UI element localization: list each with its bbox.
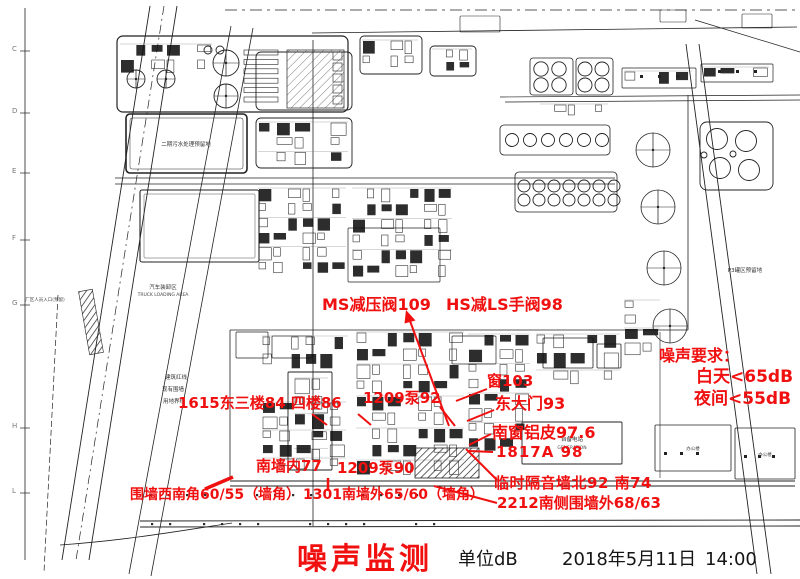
label-pump-92: 1209泵92 (363, 391, 441, 406)
gate-note-label: 厂区人员入口(预留) (25, 296, 65, 303)
requirements-title: 噪声要求： (659, 348, 739, 364)
requirement-day: 白天<65dB (696, 369, 793, 386)
p3-area-label: P3罐区预留地 (728, 266, 763, 274)
label-1817a: 1817A 98 (496, 445, 583, 460)
label-sw-corner: 围墙西南角60/55（墙角） (130, 488, 300, 502)
grid-letter: E (12, 167, 16, 175)
label-ms-valve: MS减压阀109 (322, 297, 431, 313)
grid-letter: L (12, 487, 16, 495)
grid-letter: D (12, 107, 17, 115)
date-label: 2018年5月11日 (562, 551, 696, 569)
office-label: 办公楼 (686, 445, 700, 452)
requirement-night: 夜间<55dB (694, 391, 791, 408)
grid-letter: F (12, 234, 16, 242)
label-pump-90: 1209泵90 (337, 461, 415, 476)
label-south-wall-outer: 1301南墙外65/60（墙角） (303, 488, 484, 502)
noise-monitoring-site-plan: 汽车装卸区 TRUCK LOADING AREA 厂区人员入口(预留) 建筑红线… (0, 0, 800, 579)
label-south-window: 南窗铝皮97.6 (492, 425, 595, 441)
pond-label: 二期污水处理预留地 (161, 140, 211, 148)
truck-area-label-en: TRUCK LOADING AREA (137, 292, 190, 298)
label-hs-valve: HS减LS手阀98 (446, 297, 563, 313)
office-label: 办公楼 (758, 451, 772, 458)
truck-area-label: 汽车装卸区 (149, 283, 177, 291)
label-window-103: 窗103 (487, 374, 533, 389)
label-temp-barrier: 临时隔音墙北92 南74 (494, 476, 652, 491)
label-south-wall-inner: 南墙内77 (256, 459, 322, 474)
existing-wall-label: 现有围墙 (162, 385, 185, 393)
grid-letter: C (12, 45, 17, 53)
label-fence-2212: 2212南侧围墙外68/63 (497, 496, 661, 511)
page-title: 噪声监测 (297, 545, 433, 575)
grid-letter: H (12, 422, 17, 430)
time-label: 14:00 (705, 551, 757, 569)
unit-label: 单位dB (458, 551, 518, 569)
red-line-label: 建筑红线 (165, 373, 188, 381)
label-east-gate: 东大门93 (495, 396, 565, 412)
grid-letter: G (12, 299, 17, 307)
label-east-building: 1615东三楼84 四楼86 (178, 396, 342, 411)
